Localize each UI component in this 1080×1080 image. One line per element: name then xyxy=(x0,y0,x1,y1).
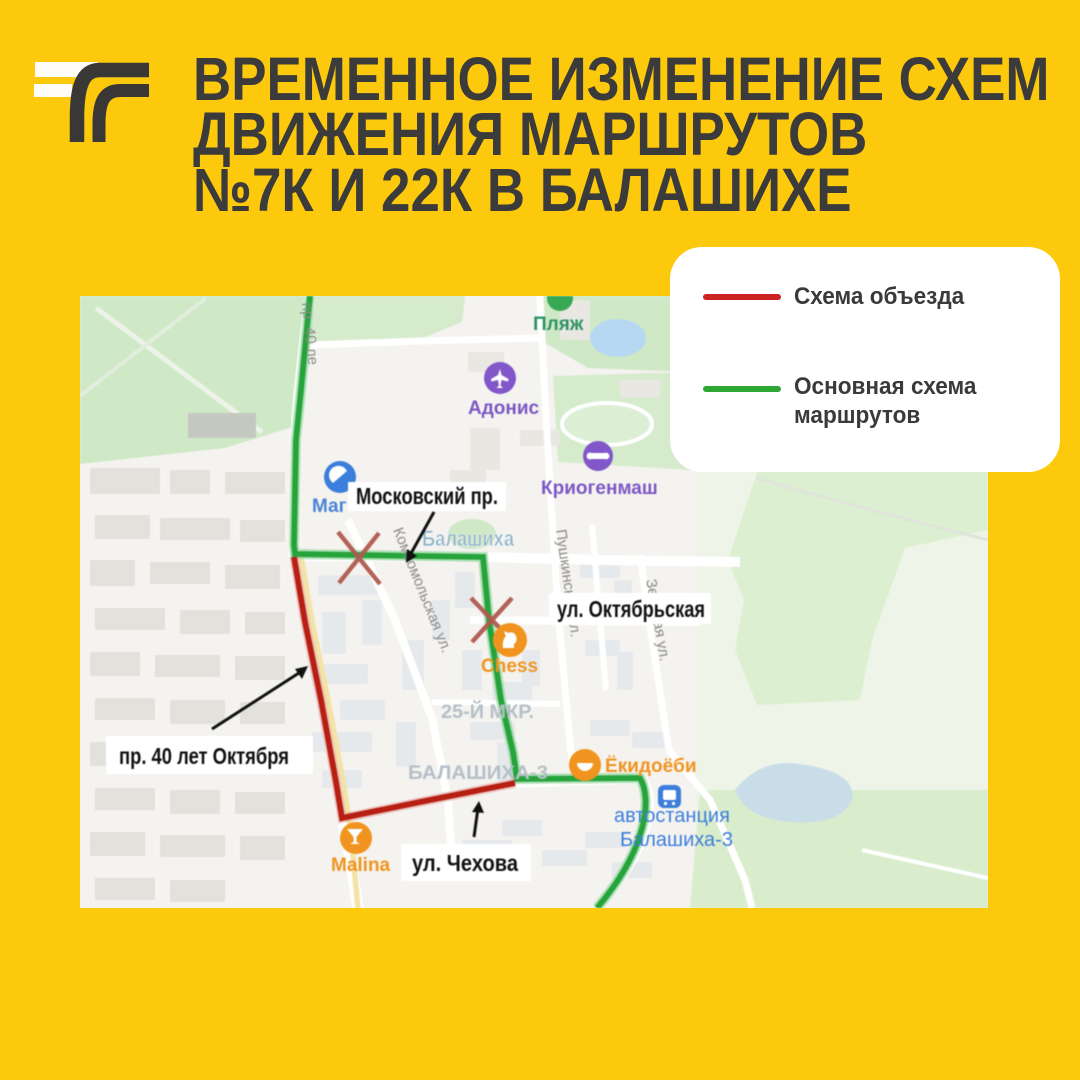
svg-text:Chess: Chess xyxy=(481,656,538,677)
svg-text:Балашиха-3: Балашиха-3 xyxy=(620,829,733,851)
svg-text:Malina: Malina xyxy=(331,855,391,876)
svg-text:ул. Чехова: ул. Чехова xyxy=(412,850,518,876)
svg-text:Балашиха: Балашиха xyxy=(422,526,515,551)
svg-text:пр. 40 лет Октября: пр. 40 лет Октября xyxy=(119,743,289,769)
svg-text:ул. Октябрьская: ул. Октябрьская xyxy=(557,596,705,622)
svg-text:25-Й МКР.: 25-Й МКР. xyxy=(441,701,534,723)
svg-text:Криогенмаш: Криогенмаш xyxy=(541,478,658,499)
svg-text:Московский пр.: Московский пр. xyxy=(356,483,498,509)
svg-text:Маг: Маг xyxy=(312,496,347,517)
svg-text:Ёкидоёби: Ёкидоёби xyxy=(605,756,697,777)
svg-text:БАЛАШИХА-3: БАЛАШИХА-3 xyxy=(408,763,548,784)
svg-text:Адонис: Адонис xyxy=(468,398,540,419)
svg-text:Пляж: Пляж xyxy=(533,314,584,335)
svg-text:автостанция: автостанция xyxy=(614,805,730,827)
